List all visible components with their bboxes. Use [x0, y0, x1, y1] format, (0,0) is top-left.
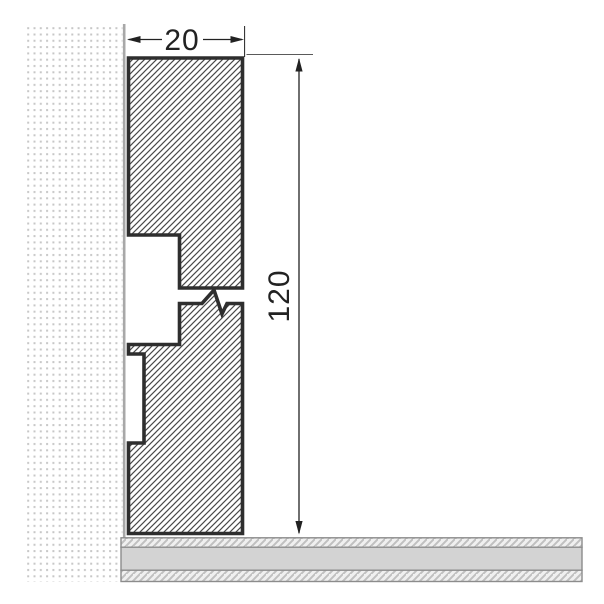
- wall-section: [26, 24, 124, 582]
- floor-layer-bottom: [121, 570, 582, 581]
- width-dim-arrow-right-icon: [231, 36, 245, 43]
- cross-section-drawing: 20 120: [0, 0, 604, 604]
- width-dimension: 20: [127, 24, 245, 57]
- height-dim-label: 120: [263, 269, 296, 322]
- technical-drawing-canvas: 20 120: [0, 0, 604, 604]
- width-dim-label: 20: [164, 24, 199, 57]
- floor-section: [121, 538, 582, 582]
- floor-layer-middle: [121, 547, 582, 570]
- height-dim-arrow-up-icon: [295, 58, 302, 72]
- height-dim-arrow-down-icon: [295, 521, 302, 535]
- floor-layer-top: [121, 538, 582, 547]
- wall-stipple-area: [26, 24, 123, 582]
- profile-upper-section: [129, 58, 243, 288]
- skirting-profile: [129, 58, 243, 534]
- width-dim-arrow-left-icon: [127, 36, 141, 43]
- profile-lower-section-with-break-mark: [129, 290, 243, 534]
- height-dimension: 120: [247, 55, 314, 535]
